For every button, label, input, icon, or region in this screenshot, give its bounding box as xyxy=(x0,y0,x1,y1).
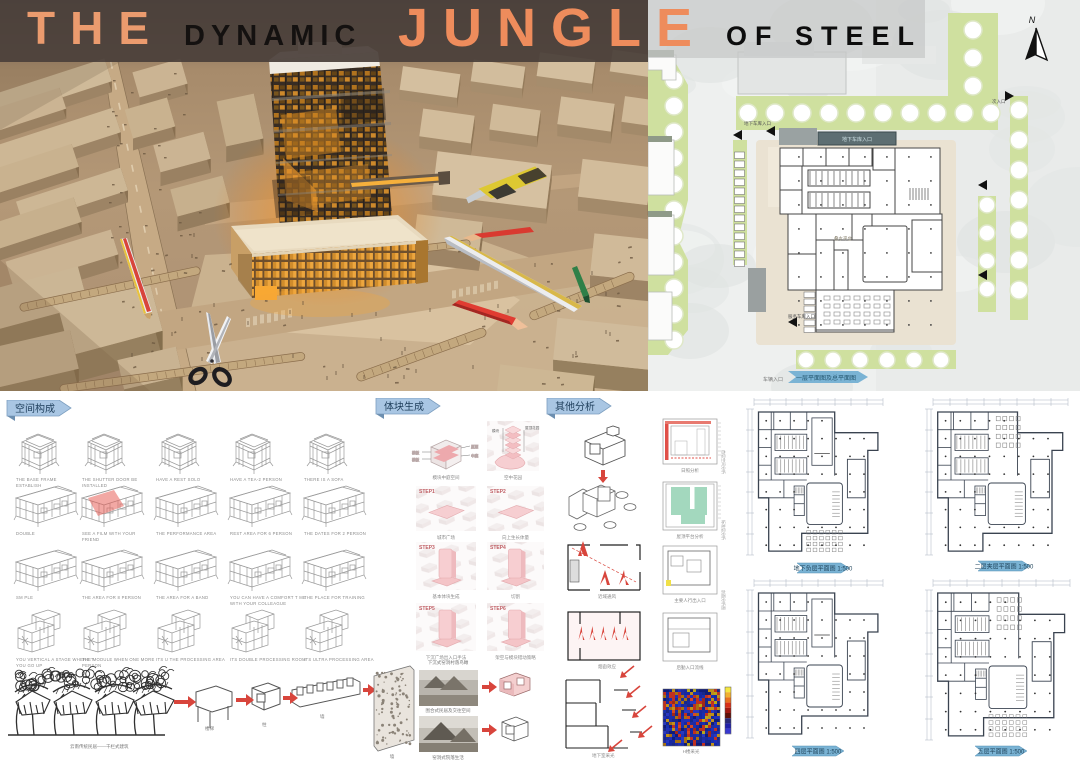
svg-text:地下负层平面图 1:500: 地下负层平面图 1:500 xyxy=(794,565,853,573)
svg-text:基本体块生成: 基本体块生成 xyxy=(433,593,460,600)
svg-text:切割: 切割 xyxy=(511,593,520,600)
svg-text:向上生长体量: 向上生长体量 xyxy=(502,534,529,541)
svg-text:THE BASE FRAME: THE BASE FRAME xyxy=(16,477,57,482)
svg-text:N: N xyxy=(1029,15,1036,25)
svg-text:STEP5: STEP5 xyxy=(419,606,435,612)
svg-text:下沉式窑洞村落鸟瞰: 下沉式窑洞村落鸟瞰 xyxy=(428,659,469,666)
svg-text:烟囱效应: 烟囱效应 xyxy=(598,663,616,670)
svg-text:标准层分析: 标准层分析 xyxy=(721,520,727,540)
svg-text:其他分析: 其他分析 xyxy=(555,400,595,413)
svg-text:空中花园: 空中花园 xyxy=(504,474,522,481)
svg-text:楼板: 楼板 xyxy=(412,457,420,462)
svg-text:STEP6: STEP6 xyxy=(490,606,506,612)
svg-text:THE AREA FOR A BAND: THE AREA FOR A BAND xyxy=(156,595,208,600)
svg-text:次入口: 次入口 xyxy=(992,98,1006,105)
svg-text:空间构成: 空间构成 xyxy=(15,402,55,415)
svg-text:日照分析: 日照分析 xyxy=(681,467,699,474)
svg-text:THE PERFORMANCE AREA: THE PERFORMANCE AREA xyxy=(156,531,216,536)
svg-text:一层平面图及总平面图: 一层平面图及总平面图 xyxy=(796,374,856,382)
svg-text:剖面分析图: 剖面分析图 xyxy=(721,590,727,610)
svg-text:后勤入口流线: 后勤入口流线 xyxy=(677,664,704,671)
svg-text:地下车库入口: 地下车库入口 xyxy=(842,136,872,143)
svg-text:YOU CAN HAVE A COMFORT T ME: YOU CAN HAVE A COMFORT T ME xyxy=(230,595,306,600)
svg-text:墙: 墙 xyxy=(390,753,395,760)
svg-text:楼梯: 楼梯 xyxy=(205,725,214,732)
svg-text:STEP3: STEP3 xyxy=(419,545,435,551)
svg-text:中庭: 中庭 xyxy=(471,453,479,458)
svg-text:REST AREA FOR 6 PERSON: REST AREA FOR 6 PERSON xyxy=(230,531,292,536)
svg-text:H楼采光: H楼采光 xyxy=(683,748,700,755)
svg-text:模块: 模块 xyxy=(492,428,500,433)
svg-text:屋顶平台分析: 屋顶平台分析 xyxy=(677,533,704,540)
svg-text:ITS ULTRA PROCESSING AREA: ITS ULTRA PROCESSING AREA xyxy=(304,657,374,662)
svg-text:STEP2: STEP2 xyxy=(490,489,506,495)
svg-text:地下室采光: 地下室采光 xyxy=(592,752,615,759)
svg-text:近域通风: 近域通风 xyxy=(598,593,616,600)
svg-text:车辆入口: 车辆入口 xyxy=(763,376,783,383)
svg-text:INSTALLED: INSTALLED xyxy=(82,483,107,488)
svg-text:THE SHUTTER DOOR BE: THE SHUTTER DOOR BE xyxy=(82,477,138,482)
svg-text:THERE IS A SOFA: THERE IS A SOFA xyxy=(304,477,344,482)
svg-text:ESTABLISH: ESTABLISH xyxy=(16,483,41,488)
svg-text:ITS U THE PROCESSING AREA: ITS U THE PROCESSING AREA xyxy=(156,657,225,662)
svg-text:SEE A FILM WITH YOUR: SEE A FILM WITH YOUR xyxy=(82,531,136,536)
svg-text:柱: 柱 xyxy=(262,721,267,728)
svg-text:ITS DOUBLE PROCESSING ROOM: ITS DOUBLE PROCESSING ROOM xyxy=(230,657,306,662)
svg-text:二层夹层平面图 1:500: 二层夹层平面图 1:500 xyxy=(975,563,1034,571)
svg-text:WITH YOUR COLLEAGUE: WITH YOUR COLLEAGUE xyxy=(230,601,286,606)
svg-text:THE AREA FOR 8 PERSON: THE AREA FOR 8 PERSON xyxy=(82,595,141,600)
svg-text:HAVE A TEA-2 PERSON: HAVE A TEA-2 PERSON xyxy=(230,477,282,482)
svg-text:DOUBLE: DOUBLE xyxy=(16,531,35,536)
svg-text:云南传统民居——干栏式建筑: 云南传统民居——干栏式建筑 xyxy=(70,743,129,750)
svg-text:THE PLACE FOR TRAINING: THE PLACE FOR TRAINING xyxy=(304,595,365,600)
svg-text:THE DATES FOR 2 PERSON: THE DATES FOR 2 PERSON xyxy=(304,531,366,536)
svg-text:城市广场: 城市广场 xyxy=(437,534,455,541)
svg-text:地下车库入口: 地下车库入口 xyxy=(744,120,771,127)
svg-text:墙: 墙 xyxy=(320,713,325,720)
svg-text:服务车库入口: 服务车库入口 xyxy=(788,313,815,320)
svg-text:屋顶: 屋顶 xyxy=(471,444,479,449)
svg-text:架空与模块错动策略: 架空与模块错动策略 xyxy=(495,654,536,661)
svg-text:五层平面图 1:500: 五层平面图 1:500 xyxy=(978,749,1025,756)
svg-text:叠水平台: 叠水平台 xyxy=(834,235,852,242)
svg-text:YOU VERTICAL A STAGE WHERE T: YOU VERTICAL A STAGE WHERE T xyxy=(16,657,94,662)
svg-text:四层平面图 1:500: 四层平面图 1:500 xyxy=(795,749,842,756)
svg-text:STEP1: STEP1 xyxy=(419,489,435,495)
svg-text:HAVE A REST SOLO: HAVE A REST SOLO xyxy=(156,477,201,482)
svg-text:THE MODULE WHEN ONE MORE: THE MODULE WHEN ONE MORE xyxy=(82,657,155,662)
svg-text:YOU GO UP: YOU GO UP xyxy=(16,663,42,668)
svg-text:主要人行出入口: 主要人行出入口 xyxy=(674,597,706,604)
svg-text:体块生成: 体块生成 xyxy=(384,400,424,413)
svg-text:窑洞式院落生活: 窑洞式院落生活 xyxy=(432,754,464,761)
svg-text:PERSON: PERSON xyxy=(82,663,101,668)
svg-text:SM PLE: SM PLE xyxy=(16,595,33,600)
svg-text:模块中庭空间: 模块中庭空间 xyxy=(433,474,460,481)
svg-text:FRIEND: FRIEND xyxy=(82,537,99,542)
svg-text:围合式民居及交往空间: 围合式民居及交往空间 xyxy=(426,707,471,714)
svg-text:屋顶花园: 屋顶花园 xyxy=(525,425,540,430)
svg-text:下沉广场出入口手法: 下沉广场出入口手法 xyxy=(426,654,467,661)
svg-text:STEP4: STEP4 xyxy=(490,545,506,551)
svg-text:首层空间分析: 首层空间分析 xyxy=(721,450,727,474)
svg-text:楼板: 楼板 xyxy=(412,450,420,455)
